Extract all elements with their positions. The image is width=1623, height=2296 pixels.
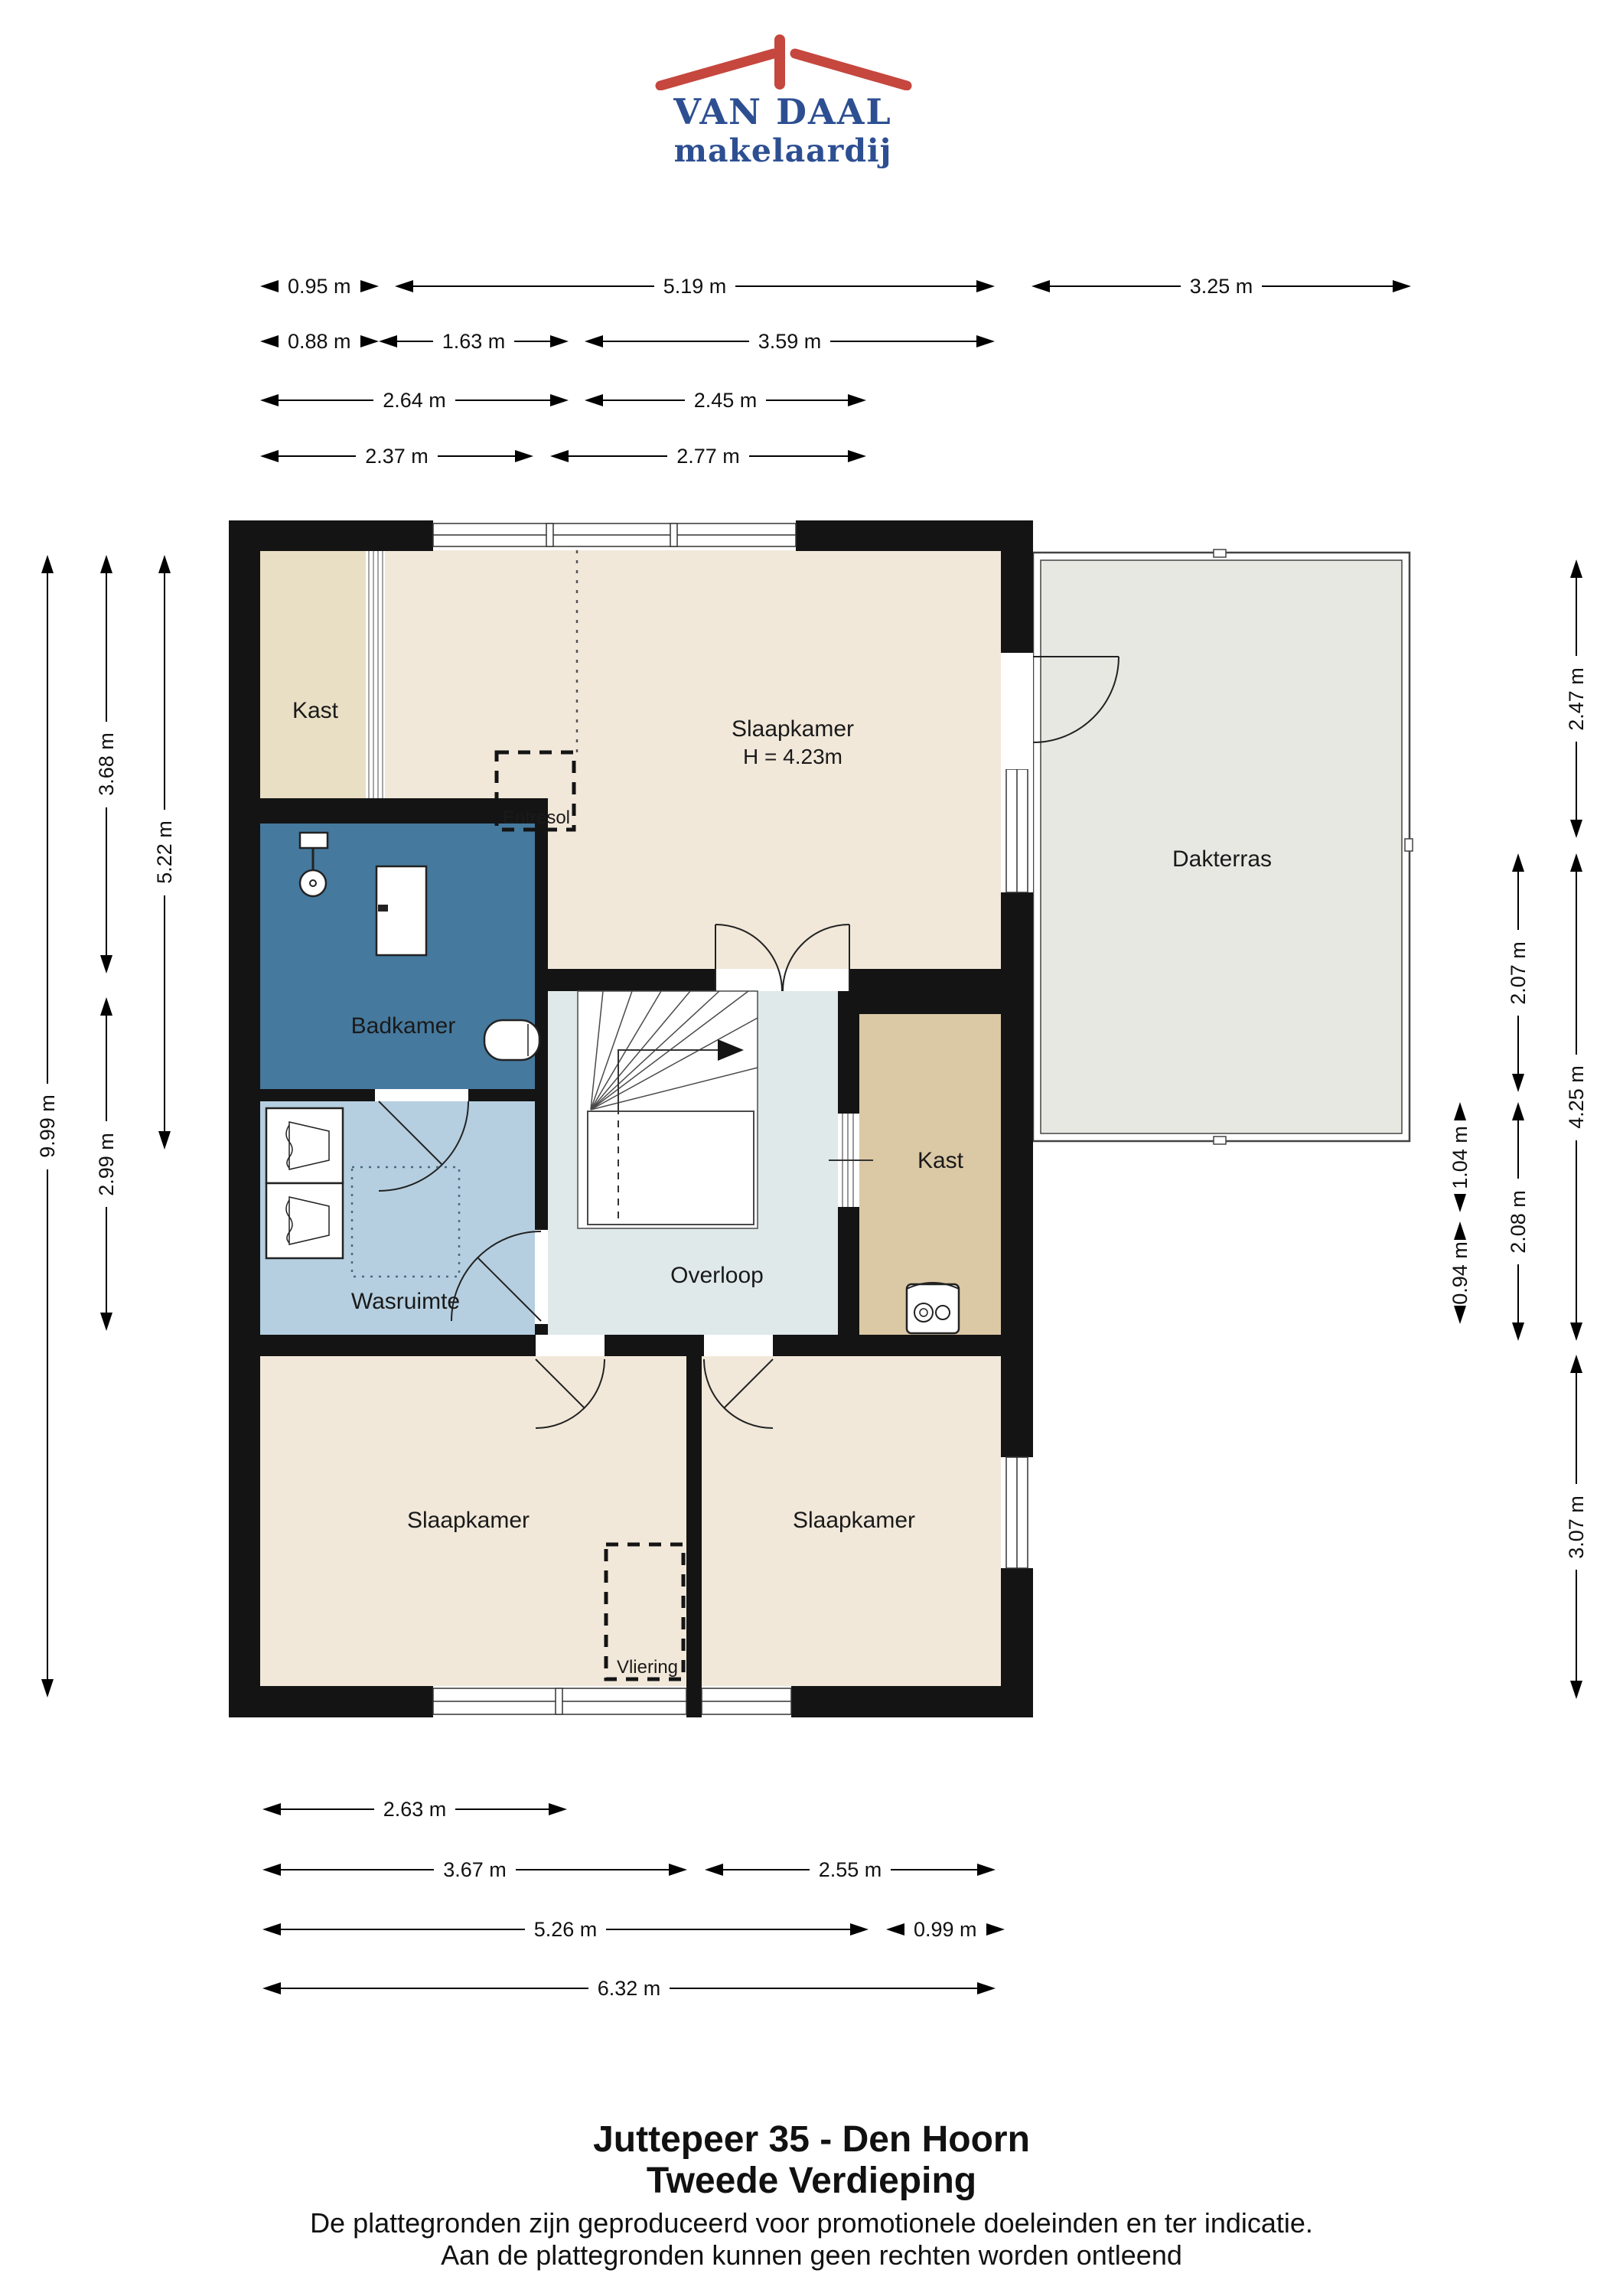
label-wasruimte: Wasruimte <box>351 1289 460 1314</box>
sliding-door-kast-topleft <box>366 550 385 808</box>
dim-top-row4-b: 2.77 m <box>550 445 866 468</box>
window-bottom-right <box>702 1688 791 1714</box>
dim-left-inner: 5.22 m <box>153 555 176 1150</box>
dim-right-terrace-top: 2.47 m <box>1565 559 1588 838</box>
dim-bottom-row2-a: 3.67 m <box>262 1858 687 1881</box>
terrace-tick-right <box>1405 839 1413 851</box>
label-badkamer: Badkamer <box>351 1013 456 1039</box>
dim-bottom-row4: 6.32 m <box>262 1977 996 2000</box>
dim-right-208: 2.08 m <box>1507 1102 1530 1341</box>
logo-name: VAN DAAL <box>653 94 913 129</box>
dim-right-094: 0.94 m <box>1449 1221 1471 1329</box>
dim-bottom-row1: 2.63 m <box>262 1798 567 1821</box>
dim-left-total: 9.99 m <box>36 555 59 1698</box>
dim-top-row2-a: 0.88 m <box>260 330 360 353</box>
terrace-tick-bottom <box>1214 1137 1226 1144</box>
window-top <box>433 523 796 546</box>
room-kast-topleft <box>260 550 366 808</box>
dim-top-row4-a: 2.37 m <box>260 445 533 468</box>
dim-top-row2-b: 1.63 m <box>379 330 569 353</box>
dim-top-row2-c: 3.59 m <box>585 330 995 353</box>
window-right-upper <box>1001 769 1033 892</box>
sink <box>484 1020 539 1060</box>
roof-icon <box>653 31 913 90</box>
footer-address: Juttepeer 35 - Den Hoorn <box>0 2118 1623 2161</box>
washing-machines <box>266 1108 343 1258</box>
footer-disclaimer-2: Aan de plattegronden kunnen geen rechten… <box>0 2239 1623 2272</box>
dim-left-upper: 3.68 m <box>95 555 118 974</box>
dim-top-row1-a: 0.95 m <box>260 275 370 298</box>
agency-logo: VAN DAAL makelaardij <box>653 31 913 167</box>
dim-top-row3-a: 2.64 m <box>260 389 569 412</box>
dim-top-row1-c: 3.25 m <box>1031 275 1411 298</box>
dim-bottom-row3-a: 5.26 m <box>262 1918 869 1941</box>
dim-right-207: 2.07 m <box>1507 853 1530 1092</box>
label-slaapkamer-top: Slaapkamer <box>732 716 854 742</box>
dim-right-104: 1.04 m <box>1449 1102 1471 1221</box>
label-entresol: Entresol <box>503 807 570 828</box>
label-slaapkamer-height: H = 4.23m <box>743 745 842 768</box>
label-slaapkamer-bottomleft: Slaapkamer <box>407 1508 530 1533</box>
dim-right-425: 4.25 m <box>1565 853 1588 1341</box>
window-right-lower <box>1001 1457 1033 1568</box>
label-kast-topleft: Kast <box>292 698 339 723</box>
staircase <box>578 991 758 1228</box>
label-overloop: Overloop <box>670 1263 764 1288</box>
footer-disclaimer-1: De plattegronden zijn geproduceerd voor … <box>0 2207 1623 2239</box>
dim-top-row1-b: 5.19 m <box>395 275 995 298</box>
window-bottom-left <box>433 1688 686 1714</box>
dim-right-307: 3.07 m <box>1565 1355 1588 1699</box>
logo-subtitle: makelaardij <box>653 135 913 167</box>
label-kast-right: Kast <box>917 1148 964 1173</box>
floorplan-page: VAN DAAL makelaardij 0.95 m 5.19 m 3.25 … <box>0 0 1623 2296</box>
room-badkamer <box>260 823 535 1101</box>
dim-bottom-row2-b: 2.55 m <box>705 1858 996 1881</box>
label-vliering: Vliering <box>617 1657 678 1678</box>
dim-bottom-row3-b: 0.99 m <box>886 1918 996 1941</box>
label-dakterras: Dakterras <box>1172 846 1272 872</box>
dim-top-row3-b: 2.45 m <box>585 389 866 412</box>
boiler <box>907 1283 959 1333</box>
dim-left-mid: 2.99 m <box>95 997 118 1331</box>
floorplan-drawing: Kast Slaapkamer H = 4.23m Entresol Dakte… <box>222 505 1431 1776</box>
footer-floor: Tweede Verdieping <box>0 2160 1623 2202</box>
label-slaapkamer-bottomright: Slaapkamer <box>793 1508 915 1533</box>
stair-void <box>588 1111 754 1225</box>
shower-door <box>376 866 426 955</box>
terrace-tick-top <box>1214 550 1226 557</box>
